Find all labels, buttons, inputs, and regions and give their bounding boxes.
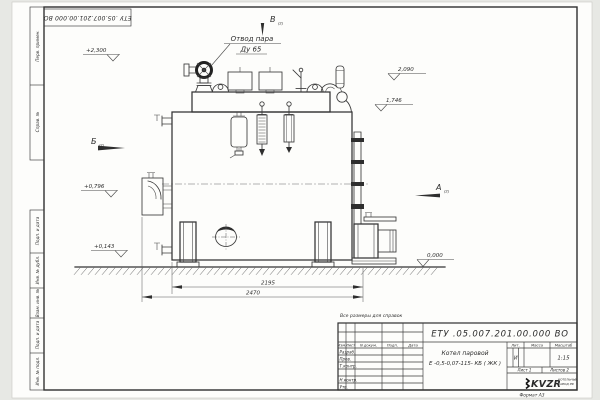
logo-text: KVZR (531, 379, 561, 390)
format-note: Формат А3 (519, 393, 544, 399)
view-label-a: А (435, 183, 441, 192)
elevation-label: 0,000 (427, 253, 443, 259)
tb-col-list: Лист (345, 344, 356, 348)
margin-label: Перв. примен. (35, 30, 40, 61)
tb-col-docnum: N докум. (360, 344, 377, 348)
boiler-drawing-svg: Перв. примен. Справ. № Подп. и дата Инв.… (0, 0, 600, 400)
margin-label: Инв. № подл. (35, 357, 40, 386)
view-label-v: В (270, 15, 276, 24)
tb-row-razrab: Разраб. (340, 350, 356, 355)
top-stamp-number: ЕТУ .05.007.201.00.000 ВО (43, 14, 131, 21)
tb-mass-label: Масса (531, 344, 543, 348)
dimension-value-inner: 2195 (261, 281, 275, 287)
view-label-a-ref: (2) (444, 190, 450, 194)
drawing-sheet-page: Перв. примен. Справ. № Подп. и дата Инв.… (0, 0, 600, 400)
margin-label: Подп. и дата (35, 216, 40, 245)
product-name-line2: Е -0,5-0,07-115- КБ ( ЖК ) (429, 361, 501, 367)
callout-line2: Ду 65 (240, 46, 262, 54)
logo-caption-line1: КОТЕЛЬНЫЙ (558, 377, 578, 382)
reference-note: Все размеры для справок (340, 313, 403, 319)
margin-label: Подп. и дата (35, 320, 40, 349)
tb-row-nkontr: Н.контр. (340, 378, 358, 383)
callout-line1: Отвод пара (231, 35, 274, 43)
tb-lit-value: И (514, 356, 518, 362)
pipe-flange (351, 138, 364, 142)
tb-sheet: Лист 1 (517, 368, 532, 373)
elevation-label: +0,143 (94, 244, 115, 250)
tb-scale-value: 1:15 (557, 356, 570, 362)
elevation-label: 1,746 (386, 98, 402, 104)
tb-col-podp: Подп. (387, 344, 398, 348)
tb-row-tkontr: Т.контр. (340, 364, 357, 369)
pipe-flange (351, 160, 364, 164)
pipe-flange (351, 204, 364, 209)
tb-scale-label: Масштаб (555, 344, 573, 348)
view-label-b: Б (91, 137, 97, 146)
pipe-flange (351, 182, 364, 186)
margin-label: Взам. инв. № (35, 288, 40, 317)
tb-sheets: Листов 2 (549, 368, 569, 373)
tb-lit-label: Лит. (510, 344, 520, 348)
margin-label: Инв. № дубл. (35, 256, 40, 285)
product-name-line1: Котел паровой (441, 350, 488, 357)
elevation-label: 2,090 (398, 67, 414, 73)
tb-row-prov: Пров. (340, 357, 352, 362)
tb-row-utv: Утв. (340, 384, 348, 389)
elevation-label: +0,796 (84, 184, 105, 190)
tb-col-data: Дата (407, 344, 418, 348)
dimension-value-outer: 2470 (246, 291, 260, 297)
view-label-v-ref: (2) (278, 22, 284, 26)
title-doc-number: ЕТУ .05.007.201.00.000 ВО (431, 330, 568, 340)
margin-label: Справ. № (35, 111, 40, 132)
elevation-label: +2,300 (86, 48, 107, 54)
logo-caption-line2: ЗАВОД РФ (558, 382, 575, 386)
